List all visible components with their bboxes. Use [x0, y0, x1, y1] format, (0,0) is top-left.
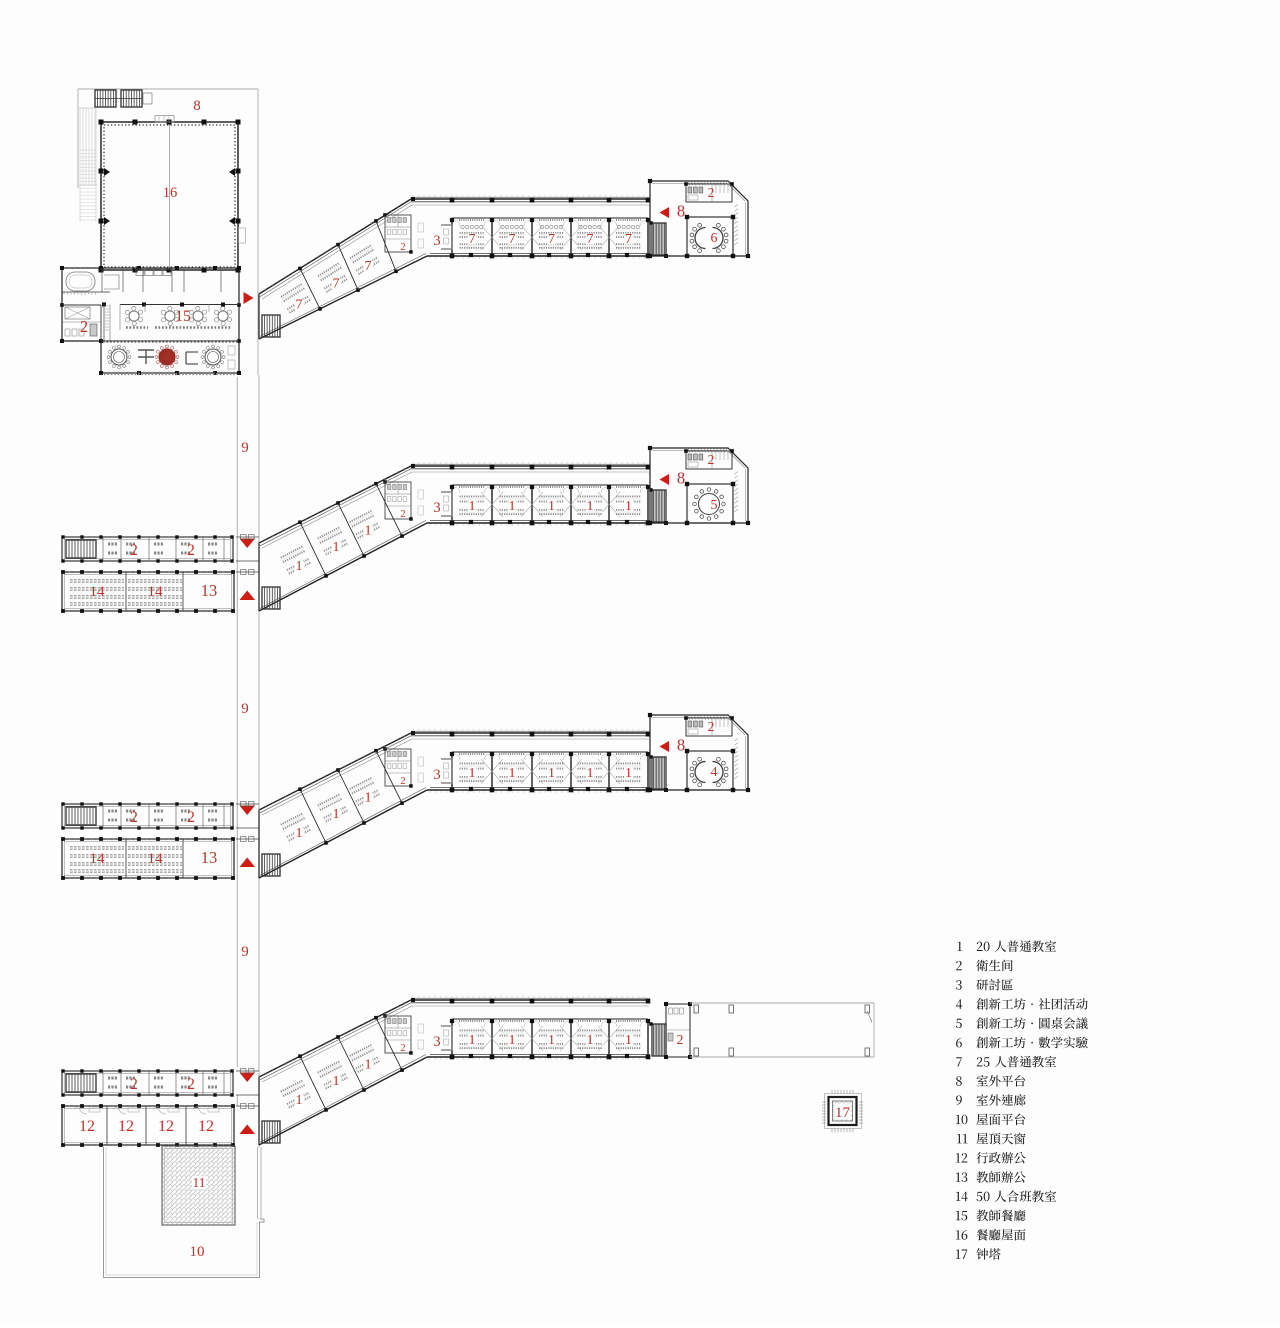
svg-text:14: 14 — [90, 851, 106, 867]
svg-text:1: 1 — [469, 499, 476, 514]
svg-text:2: 2 — [130, 809, 138, 826]
svg-text:3: 3 — [433, 1034, 440, 1050]
svg-text:1: 1 — [587, 766, 594, 781]
svg-text:1: 1 — [625, 766, 632, 781]
svg-text:16: 16 — [163, 185, 178, 201]
svg-text:12: 12 — [158, 1118, 174, 1135]
svg-text:6: 6 — [711, 231, 718, 246]
svg-text:1: 1 — [469, 1033, 476, 1048]
svg-text:8: 8 — [677, 469, 685, 488]
svg-text:7: 7 — [333, 277, 340, 292]
svg-text:2: 2 — [80, 317, 88, 336]
svg-text:2: 2 — [677, 1033, 684, 1048]
svg-text:11: 11 — [193, 1175, 206, 1190]
svg-text:7: 7 — [509, 232, 516, 247]
svg-text:2: 2 — [400, 776, 405, 787]
svg-text:5: 5 — [711, 498, 718, 513]
svg-text:1: 1 — [625, 1033, 632, 1048]
svg-text:7: 7 — [469, 232, 476, 247]
svg-text:1: 1 — [587, 499, 594, 514]
svg-text:1: 1 — [296, 1093, 303, 1108]
svg-text:1: 1 — [469, 766, 476, 781]
svg-text:8: 8 — [193, 98, 201, 114]
svg-text:2: 2 — [187, 542, 195, 559]
svg-text:1: 1 — [625, 499, 632, 514]
svg-text:1: 1 — [365, 1058, 372, 1073]
svg-text:3: 3 — [433, 767, 440, 783]
svg-text:1: 1 — [587, 1033, 594, 1048]
svg-text:1: 1 — [296, 826, 303, 841]
svg-text:14: 14 — [90, 584, 106, 600]
svg-text:1: 1 — [548, 1033, 555, 1048]
svg-text:8: 8 — [677, 202, 685, 221]
svg-text:2: 2 — [400, 1043, 405, 1054]
svg-text:2: 2 — [708, 185, 715, 200]
svg-text:1: 1 — [365, 524, 372, 539]
svg-text:1: 1 — [365, 791, 372, 806]
svg-text:2: 2 — [708, 719, 715, 734]
svg-text:10: 10 — [190, 1244, 205, 1260]
svg-text:7: 7 — [548, 232, 555, 247]
svg-text:1: 1 — [509, 499, 516, 514]
svg-text:1: 1 — [296, 559, 303, 574]
svg-text:2: 2 — [187, 1076, 195, 1093]
svg-text:15: 15 — [175, 308, 191, 325]
svg-text:12: 12 — [118, 1118, 134, 1135]
svg-text:7: 7 — [625, 232, 632, 247]
svg-text:1: 1 — [548, 499, 555, 514]
svg-text:2: 2 — [400, 242, 405, 253]
svg-text:17: 17 — [835, 1105, 851, 1121]
svg-text:9: 9 — [241, 701, 249, 717]
svg-text:7: 7 — [365, 259, 372, 274]
svg-text:7: 7 — [587, 232, 594, 247]
svg-text:14: 14 — [148, 584, 164, 600]
svg-text:12: 12 — [198, 1118, 214, 1135]
svg-text:13: 13 — [201, 581, 218, 600]
svg-text:2: 2 — [130, 1076, 138, 1093]
svg-text:1: 1 — [548, 766, 555, 781]
svg-text:1: 1 — [509, 766, 516, 781]
svg-text:2: 2 — [400, 509, 405, 520]
svg-text:2: 2 — [708, 452, 715, 467]
svg-text:3: 3 — [433, 500, 440, 516]
svg-text:1: 1 — [333, 540, 340, 555]
svg-text:2: 2 — [130, 542, 138, 559]
svg-text:12: 12 — [79, 1118, 95, 1135]
svg-text:1: 1 — [333, 1074, 340, 1089]
svg-text:1: 1 — [333, 807, 340, 822]
svg-text:4: 4 — [711, 765, 718, 780]
svg-text:13: 13 — [201, 848, 218, 867]
svg-text:2: 2 — [187, 809, 195, 826]
svg-text:1: 1 — [509, 1033, 516, 1048]
svg-text:9: 9 — [241, 440, 249, 456]
svg-text:9: 9 — [241, 944, 249, 960]
svg-text:3: 3 — [433, 233, 440, 249]
svg-text:14: 14 — [148, 851, 164, 867]
svg-text:7: 7 — [296, 297, 303, 312]
svg-text:8: 8 — [677, 736, 685, 755]
